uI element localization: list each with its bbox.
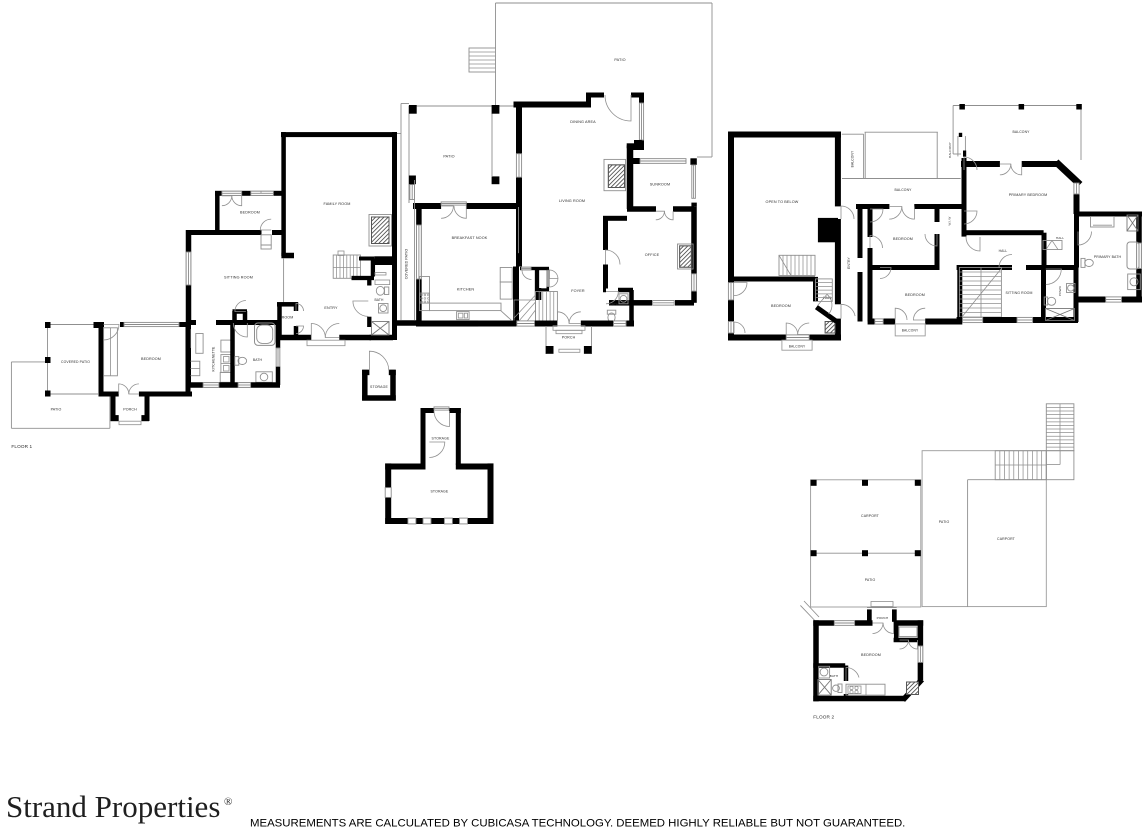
svg-text:BEDROOM: BEDROOM (141, 357, 161, 361)
svg-text:COVERED PATIO: COVERED PATIO (405, 249, 409, 280)
svg-text:CARPORT: CARPORT (861, 514, 880, 518)
svg-text:HALL: HALL (1056, 236, 1064, 240)
svg-text:PATIO: PATIO (443, 155, 454, 159)
svg-text:STORAGE: STORAGE (432, 437, 450, 441)
svg-text:BATH: BATH (830, 674, 839, 678)
svg-text:PRIMARY BATH: PRIMARY BATH (1094, 255, 1122, 259)
svg-text:SITTING ROOM: SITTING ROOM (224, 276, 253, 280)
svg-text:PORCH: PORCH (877, 616, 889, 620)
svg-text:STORAGE: STORAGE (430, 490, 448, 494)
svg-text:SITTING ROOM: SITTING ROOM (1005, 291, 1032, 295)
svg-text:PRIMARY BEDROOM: PRIMARY BEDROOM (1009, 193, 1048, 197)
svg-text:ENTRY: ENTRY (324, 306, 338, 310)
svg-text:ROOM: ROOM (282, 316, 294, 320)
svg-text:SUNROOM: SUNROOM (650, 183, 670, 187)
svg-text:PATIO: PATIO (939, 520, 950, 524)
svg-text:PORCH: PORCH (562, 336, 576, 340)
svg-text:BALCONY: BALCONY (1012, 130, 1030, 134)
svg-text:POWR: POWR (1058, 285, 1062, 296)
svg-text:HALL: HALL (999, 249, 1008, 253)
svg-text:FLOOR 2: FLOOR 2 (813, 715, 834, 720)
svg-text:®: ® (224, 796, 232, 808)
svg-text:FLOOR 1: FLOOR 1 (11, 444, 32, 449)
svg-text:Strand Properties: Strand Properties (6, 789, 220, 824)
svg-text:BALCONY: BALCONY (850, 150, 854, 167)
svg-text:PATIO: PATIO (614, 58, 625, 62)
svg-text:BALCONY: BALCONY (948, 142, 952, 158)
svg-text:KITCHEN: KITCHEN (457, 288, 474, 292)
svg-text:MEASUREMENTS ARE CALCULATED BY: MEASUREMENTS ARE CALCULATED BY CUBICASA … (250, 818, 905, 830)
svg-text:ENTRY: ENTRY (847, 256, 851, 268)
svg-text:BEDROOM: BEDROOM (905, 293, 925, 297)
svg-text:BATH: BATH (374, 298, 384, 302)
svg-text:W.I.W: W.I.W (948, 217, 952, 226)
svg-text:BALCONY: BALCONY (789, 345, 806, 349)
svg-text:PATIO: PATIO (51, 408, 62, 412)
svg-text:BATH: BATH (609, 303, 619, 307)
svg-text:BEDROOM: BEDROOM (893, 237, 913, 241)
svg-text:PATIO: PATIO (865, 578, 876, 582)
svg-text:PORCH: PORCH (123, 408, 137, 412)
svg-text:OPEN TO BELOW: OPEN TO BELOW (766, 200, 799, 204)
svg-text:BEDROOM: BEDROOM (771, 304, 791, 308)
svg-text:DINING AREA: DINING AREA (570, 120, 596, 124)
svg-text:STORAGE: STORAGE (370, 385, 388, 389)
svg-text:LIVING ROOM: LIVING ROOM (559, 199, 585, 203)
svg-text:BEDROOM: BEDROOM (861, 653, 881, 657)
svg-text:BALCONY: BALCONY (894, 188, 912, 192)
svg-text:BREAKFAST NOOK: BREAKFAST NOOK (452, 236, 488, 240)
svg-text:BEDROOM: BEDROOM (240, 211, 260, 215)
svg-text:COVERED PATIO: COVERED PATIO (61, 360, 90, 364)
svg-text:BATH: BATH (253, 358, 263, 362)
svg-text:KITCHENETTE: KITCHENETTE (212, 346, 216, 371)
svg-text:FAMILY ROOM: FAMILY ROOM (323, 202, 350, 206)
svg-text:OFFICE: OFFICE (645, 253, 660, 257)
svg-text:BALCONY: BALCONY (902, 329, 919, 333)
svg-text:CARPORT: CARPORT (997, 537, 1016, 541)
svg-text:FOYER: FOYER (571, 289, 585, 293)
